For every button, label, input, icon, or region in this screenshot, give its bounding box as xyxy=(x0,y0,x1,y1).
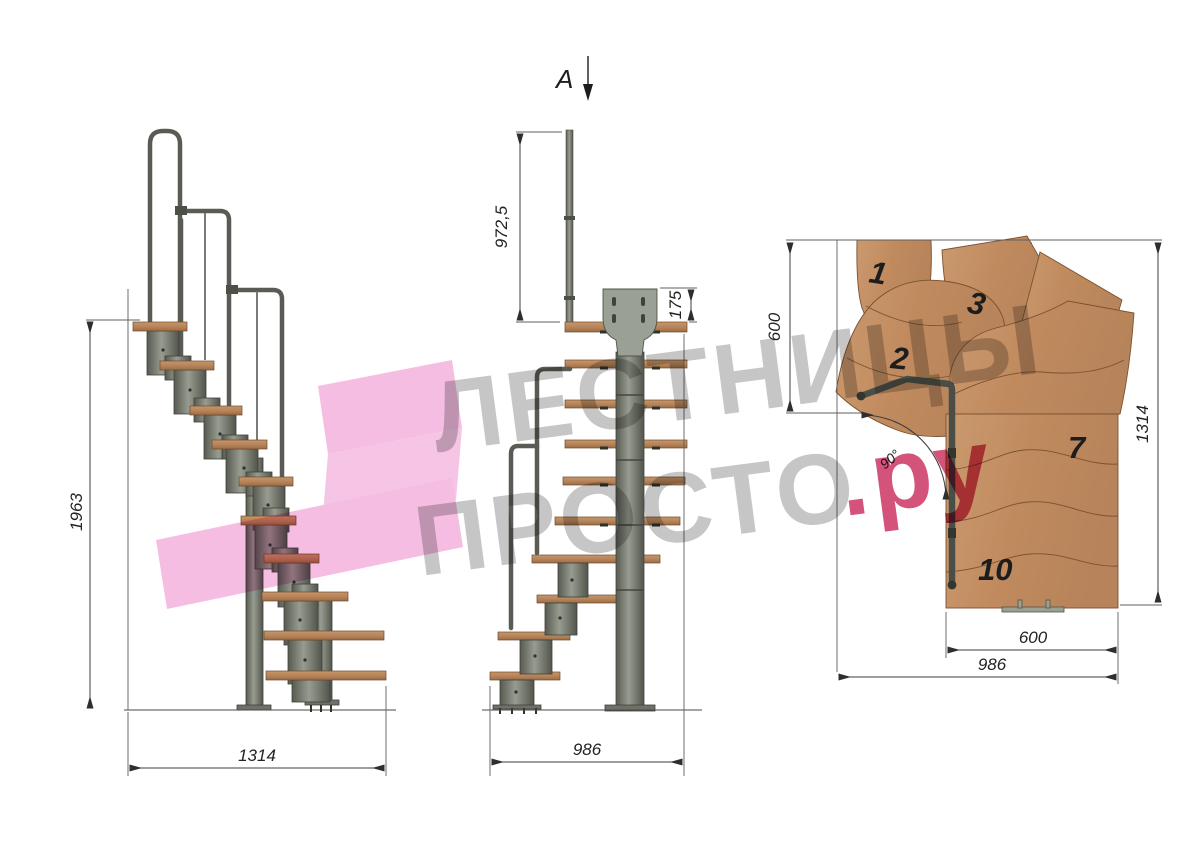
rail-joint xyxy=(948,528,956,538)
floor-plate-tab xyxy=(1018,600,1022,608)
post-joint xyxy=(564,296,575,300)
bracket-slot xyxy=(641,314,645,323)
dimension-label-flight-width: 600 xyxy=(1019,628,1048,647)
watermark-suffix: .ру xyxy=(832,407,1000,538)
dimension-label-bracket: 175 xyxy=(666,290,685,319)
floor-plate xyxy=(1002,607,1064,612)
technical-drawing: 1963 1314 A xyxy=(0,0,1200,849)
extension-line xyxy=(516,132,562,322)
dimension-label-front-width: 986 xyxy=(573,740,602,759)
post-joint xyxy=(564,216,575,220)
dimension-label-rail-post: 972,5 xyxy=(492,205,511,248)
bracket-slot xyxy=(612,314,616,323)
bracket-slot xyxy=(612,297,616,306)
dimension-label-plan-width: 986 xyxy=(978,655,1007,674)
step-unit xyxy=(266,671,386,702)
anchor-bolts xyxy=(311,705,331,712)
handrail-loop xyxy=(150,131,180,324)
floor-plate-tab xyxy=(1046,600,1050,608)
handrail-end-cap xyxy=(948,581,957,590)
rail-clamp xyxy=(175,206,187,215)
step-number-7: 7 xyxy=(1068,430,1087,465)
bracket-slot xyxy=(641,297,645,306)
column-base xyxy=(237,705,271,710)
extension-line xyxy=(946,612,1118,684)
dimension-label-total-height: 1963 xyxy=(67,493,86,531)
section-marker-label: A xyxy=(554,64,573,94)
dimension-label-total-length: 1314 xyxy=(238,746,276,765)
section-arrowhead-icon xyxy=(583,84,593,101)
rail-clamp xyxy=(226,285,238,294)
dimension-label-plan-height: 1314 xyxy=(1133,405,1152,443)
staircase-drawing-canvas: 1963 1314 A xyxy=(0,0,1200,849)
step-number-10: 10 xyxy=(978,552,1012,587)
